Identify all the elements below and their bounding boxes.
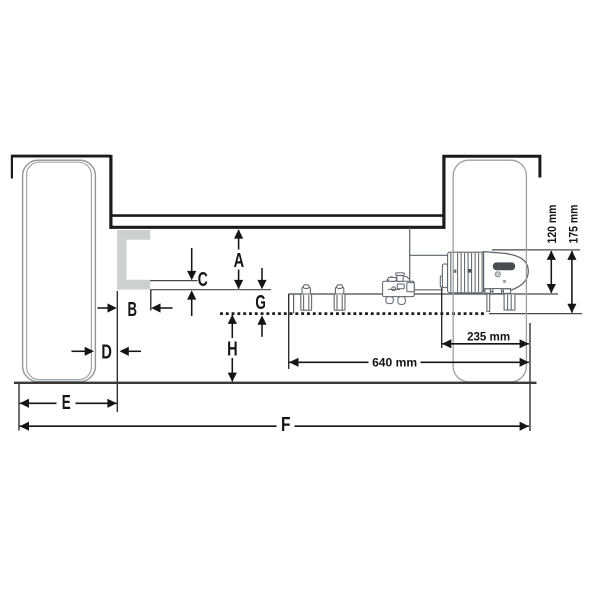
svg-text:C: C xyxy=(198,268,208,291)
svg-text:E: E xyxy=(62,391,71,414)
svg-text:A: A xyxy=(234,249,245,272)
svg-text:G: G xyxy=(255,291,266,314)
svg-text:175 mm: 175 mm xyxy=(569,205,581,244)
svg-text:B: B xyxy=(128,298,138,321)
svg-text:640 mm: 640 mm xyxy=(372,356,417,370)
svg-text:F: F xyxy=(281,413,291,436)
svg-text:D: D xyxy=(101,341,112,364)
svg-text:235 mm: 235 mm xyxy=(467,330,510,344)
svg-text:120 mm: 120 mm xyxy=(547,205,559,244)
svg-text:H: H xyxy=(227,338,238,361)
